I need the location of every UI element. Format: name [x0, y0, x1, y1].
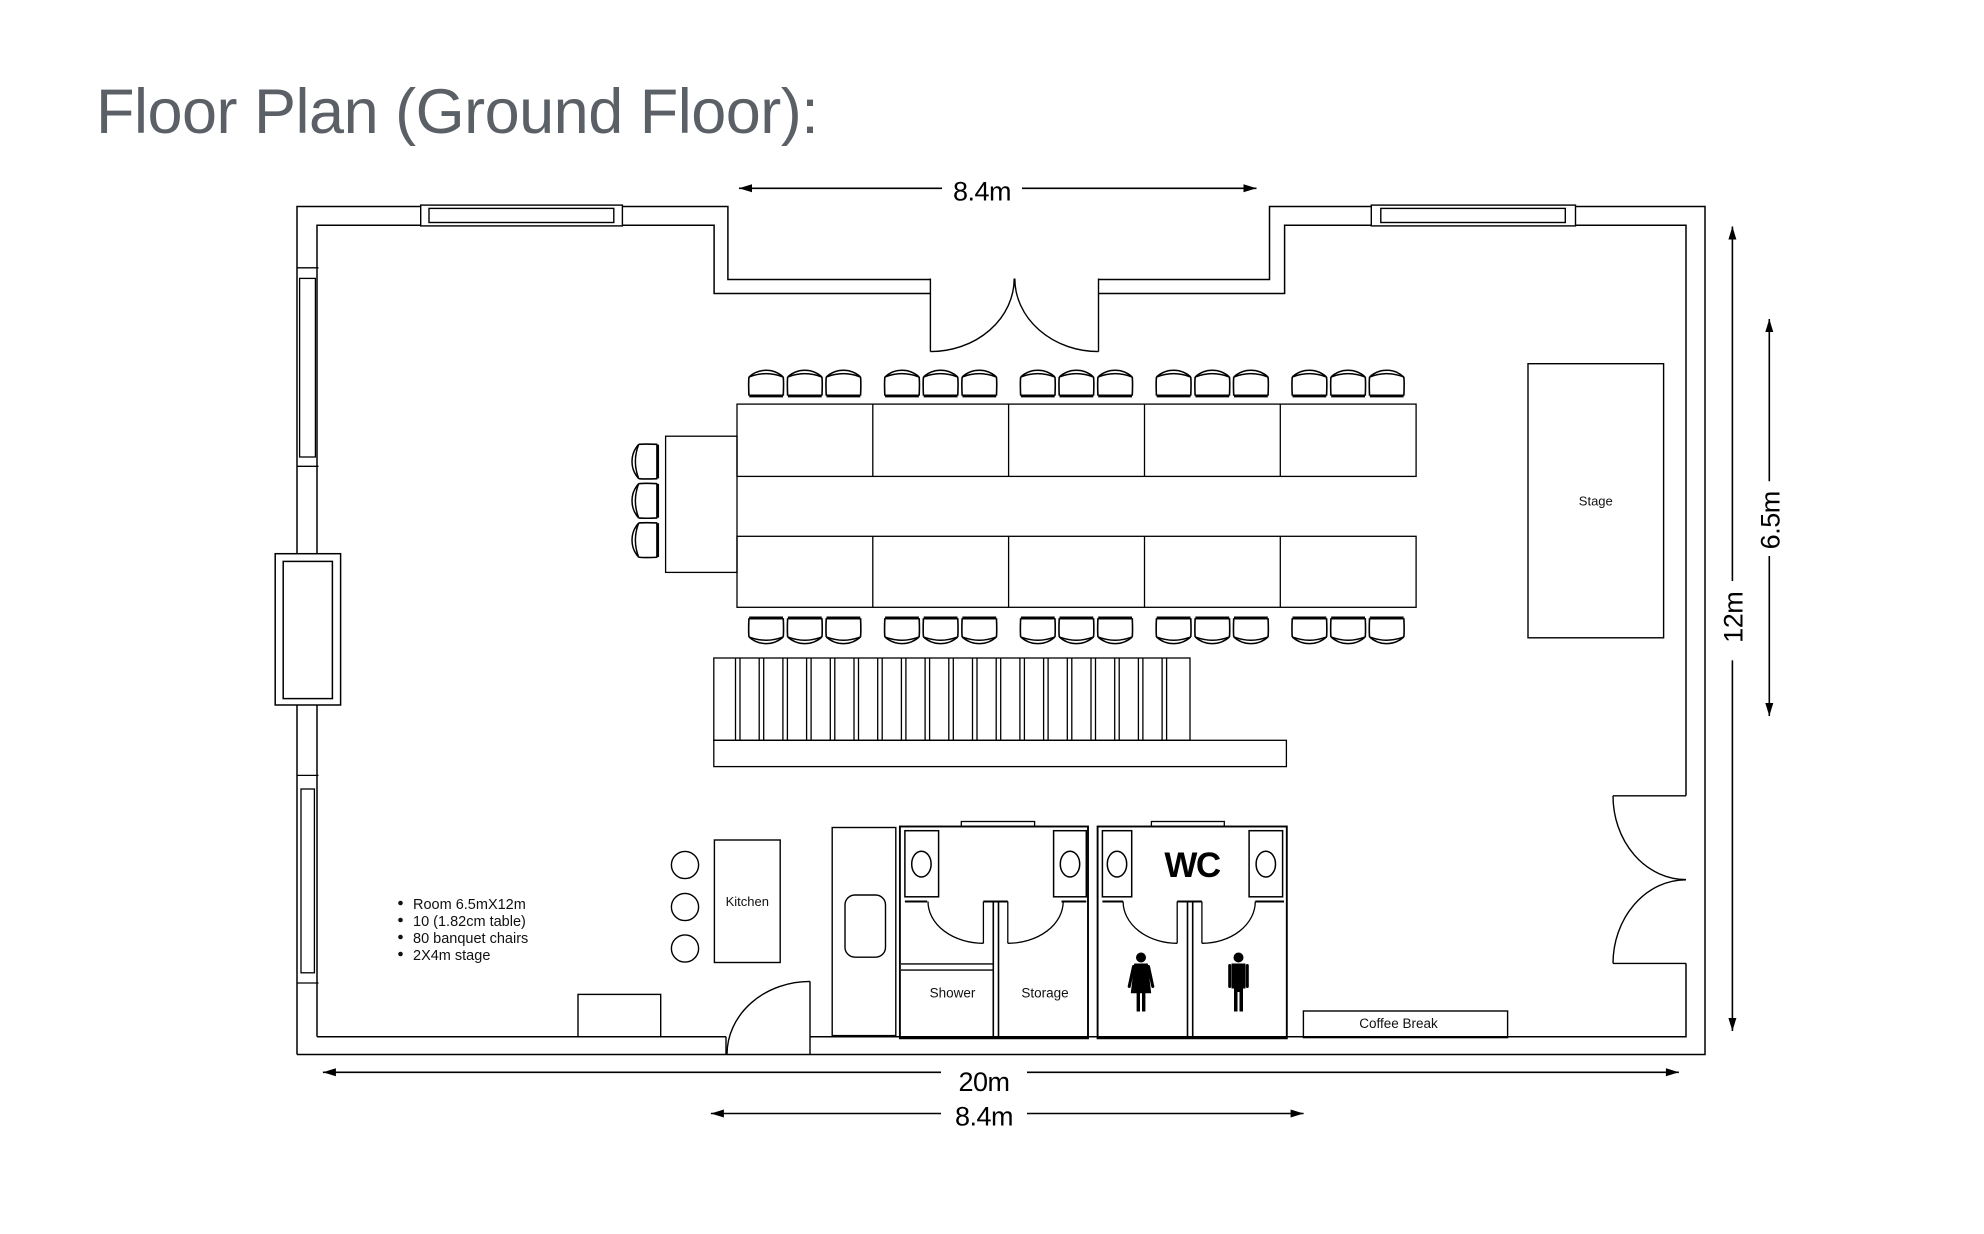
svg-text:Room 6.5mX12m: Room 6.5mX12m: [413, 897, 526, 913]
svg-text:10 (1.82cm table): 10 (1.82cm table): [413, 914, 526, 930]
svg-text:8.4m: 8.4m: [953, 176, 1011, 206]
svg-text:12m: 12m: [1719, 592, 1749, 643]
svg-text:20m: 20m: [958, 1067, 1009, 1097]
svg-text:WC: WC: [1164, 846, 1221, 885]
svg-text:Coffee Break: Coffee Break: [1359, 1016, 1438, 1031]
svg-text:Kitchen: Kitchen: [726, 894, 769, 909]
svg-text:6.5m: 6.5m: [1755, 491, 1785, 549]
svg-text:2X4m stage: 2X4m stage: [413, 948, 490, 964]
svg-text:80 banquet chairs: 80 banquet chairs: [413, 931, 528, 947]
svg-text:Shower: Shower: [930, 986, 976, 1001]
svg-text:8.4m: 8.4m: [955, 1102, 1013, 1132]
svg-text:Stage: Stage: [1579, 494, 1613, 509]
svg-text:Storage: Storage: [1021, 986, 1068, 1001]
svg-text:Floor Plan (Ground Floor):: Floor Plan (Ground Floor):: [96, 77, 818, 147]
